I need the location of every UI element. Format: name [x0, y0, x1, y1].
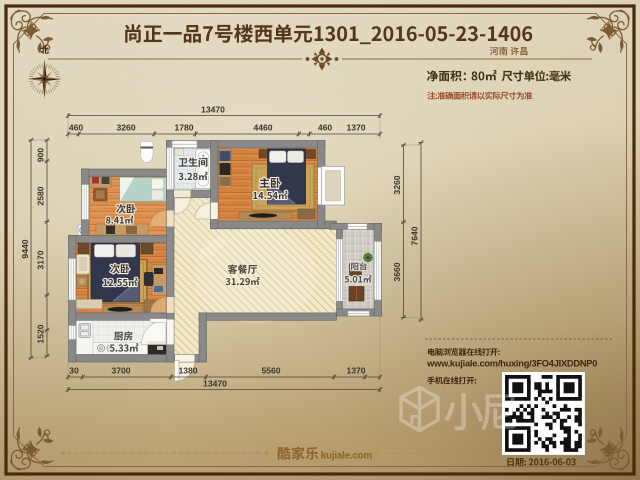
svg-text:460: 460	[69, 123, 84, 133]
svg-text:1370: 1370	[346, 123, 365, 133]
svg-text:3260: 3260	[392, 175, 402, 194]
svg-text:5560: 5560	[261, 366, 280, 376]
svg-text:9440: 9440	[20, 239, 30, 258]
svg-text:3260: 3260	[116, 123, 135, 133]
svg-text:900: 900	[36, 148, 46, 163]
svg-text:460: 460	[318, 123, 333, 133]
svg-text:3660: 3660	[392, 262, 402, 281]
svg-text:7640: 7640	[410, 226, 420, 245]
svg-text:3700: 3700	[111, 366, 130, 376]
svg-text:kujiale.com: kujiale.com	[321, 451, 373, 462]
svg-text:www.kujiale.com/huxing/3FO4JIX: www.kujiale.com/huxing/3FO4JIXDDNP0	[426, 359, 597, 369]
svg-text:1370: 1370	[346, 366, 365, 376]
svg-text:1380: 1380	[178, 366, 197, 376]
svg-text:1520: 1520	[36, 324, 46, 343]
svg-text:4460: 4460	[253, 123, 272, 133]
svg-text:13470: 13470	[201, 105, 225, 115]
svg-text:30: 30	[69, 366, 79, 376]
svg-text:1780: 1780	[174, 123, 193, 133]
svg-text:13470: 13470	[203, 379, 227, 389]
svg-text:3170: 3170	[36, 250, 46, 269]
svg-text:2580: 2580	[36, 186, 46, 205]
